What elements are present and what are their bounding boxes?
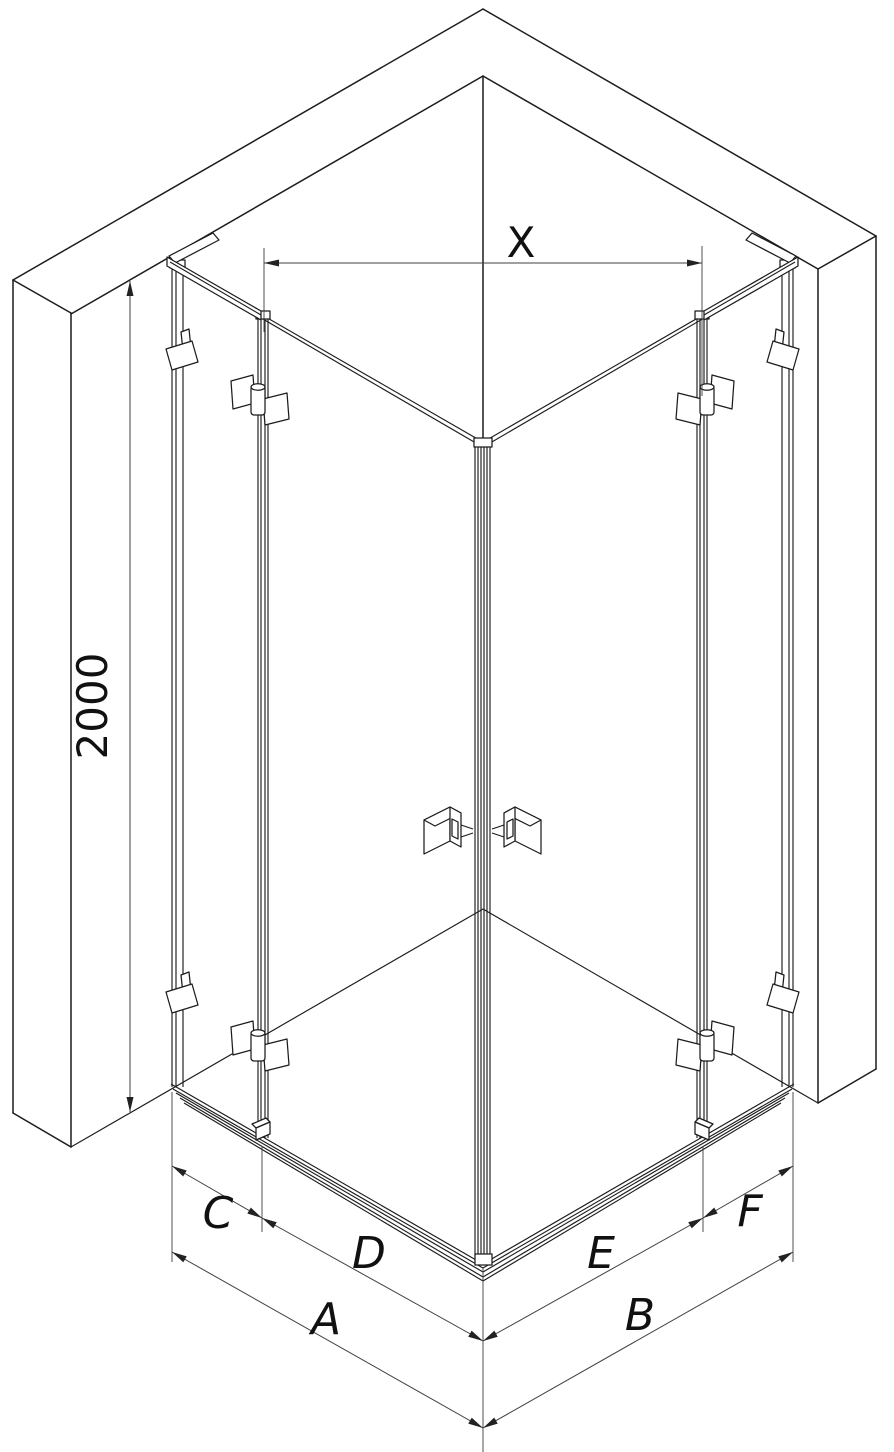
left-top-hinge-door-plate — [263, 393, 289, 425]
left-handle-slot — [452, 819, 458, 839]
dimension-label-f: F — [737, 1186, 763, 1237]
right-handle-slot — [507, 819, 513, 839]
dimension-label-c: C — [203, 1188, 234, 1239]
dimension-label-a: A — [308, 1294, 341, 1345]
shower-enclosure-isometric-drawing: X 2000 C D E F A B — [0, 0, 894, 1452]
center-edge-top-cap — [474, 438, 492, 447]
dimension-label-e: E — [587, 1228, 615, 1279]
right-top-hinge-door-plate — [676, 393, 702, 425]
left-bottom-hinge-door-plate — [263, 1039, 289, 1071]
dimension-label-x: X — [507, 218, 536, 267]
dimension-label-2000: 2000 — [68, 653, 117, 760]
right-bottom-hinge-door-plate — [676, 1039, 702, 1071]
tray-corner-cap — [475, 1254, 492, 1265]
dimension-label-d: D — [352, 1228, 386, 1279]
shower-enclosure-diagram-page: X 2000 C D E F A B — [0, 0, 894, 1452]
dimension-label-b: B — [625, 1290, 655, 1341]
